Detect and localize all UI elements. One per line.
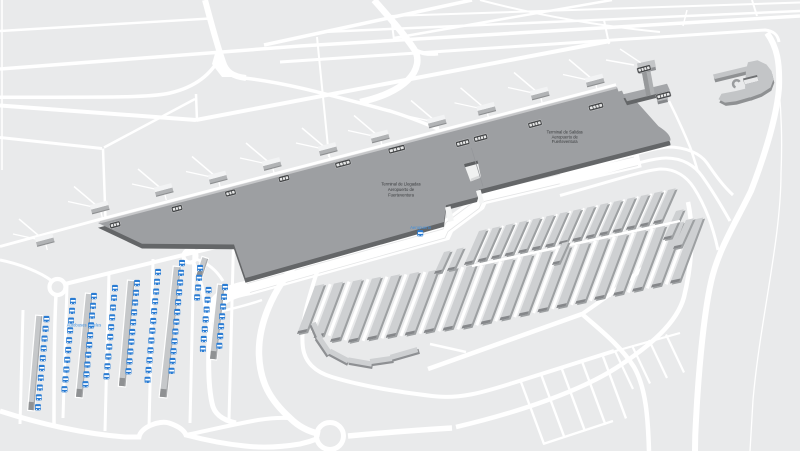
svg-text:Terminal de Llegadas: Terminal de Llegadas <box>381 182 420 187</box>
svg-text:Fuerteventura: Fuerteventura <box>388 192 414 197</box>
svg-text:Aeropuerto: Aeropuerto <box>410 225 432 230</box>
svg-text:Aeropuerto de: Aeropuerto de <box>388 187 415 192</box>
svg-text:Fuerteventura: Fuerteventura <box>552 139 578 144</box>
svg-text:Autobuses hoteles: Autobuses hoteles <box>67 323 101 328</box>
